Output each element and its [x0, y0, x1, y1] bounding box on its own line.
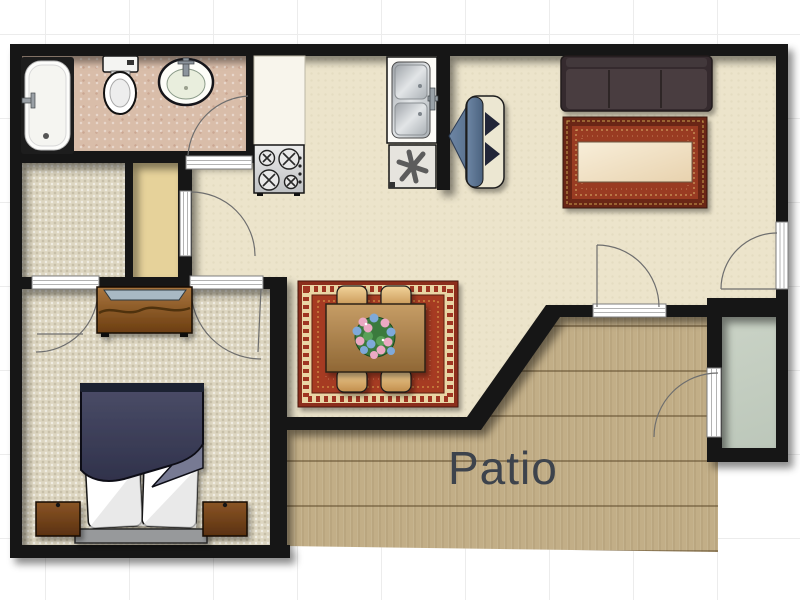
- floor-plan: Patio: [0, 0, 800, 600]
- stove: [254, 145, 304, 196]
- bed: [75, 383, 207, 543]
- sofa: [561, 56, 712, 111]
- dresser-mirror: [104, 290, 186, 300]
- patio-door-threshold: [593, 304, 666, 317]
- dining-table: [326, 304, 425, 372]
- bed-footboard: [75, 529, 207, 543]
- bathtub: [21, 57, 74, 154]
- entry-door-threshold: [776, 222, 788, 289]
- bed-head-bar: [80, 383, 204, 392]
- patio-door-arc: [597, 245, 659, 307]
- bathroom-door-arc: [188, 96, 248, 155]
- tub-drain: [43, 133, 49, 139]
- bedroom-door-arc: [191, 289, 261, 359]
- toilet: [103, 56, 138, 114]
- bathroom-door-threshold: [186, 156, 252, 169]
- closet-door-arc: [36, 290, 98, 352]
- bathroom-sink: [159, 58, 213, 105]
- hall-closet-door-threshold: [180, 191, 191, 256]
- bedroom-door-threshold: [190, 276, 263, 289]
- storage-door-threshold: [707, 368, 721, 437]
- coffee-table: [578, 142, 692, 182]
- hall-closet-door-arc: [191, 192, 255, 256]
- kitchen-sink: [387, 57, 438, 143]
- kitchen-counter: [254, 56, 305, 145]
- plan-drawing: [0, 0, 800, 600]
- dresser: [97, 287, 192, 337]
- dishwasher: [389, 145, 436, 188]
- armchair: [449, 96, 504, 188]
- living-room-rug: [563, 117, 707, 208]
- entry-door-arc: [721, 233, 777, 289]
- patio-label: Patio: [448, 441, 588, 495]
- closet-door-threshold: [32, 276, 99, 289]
